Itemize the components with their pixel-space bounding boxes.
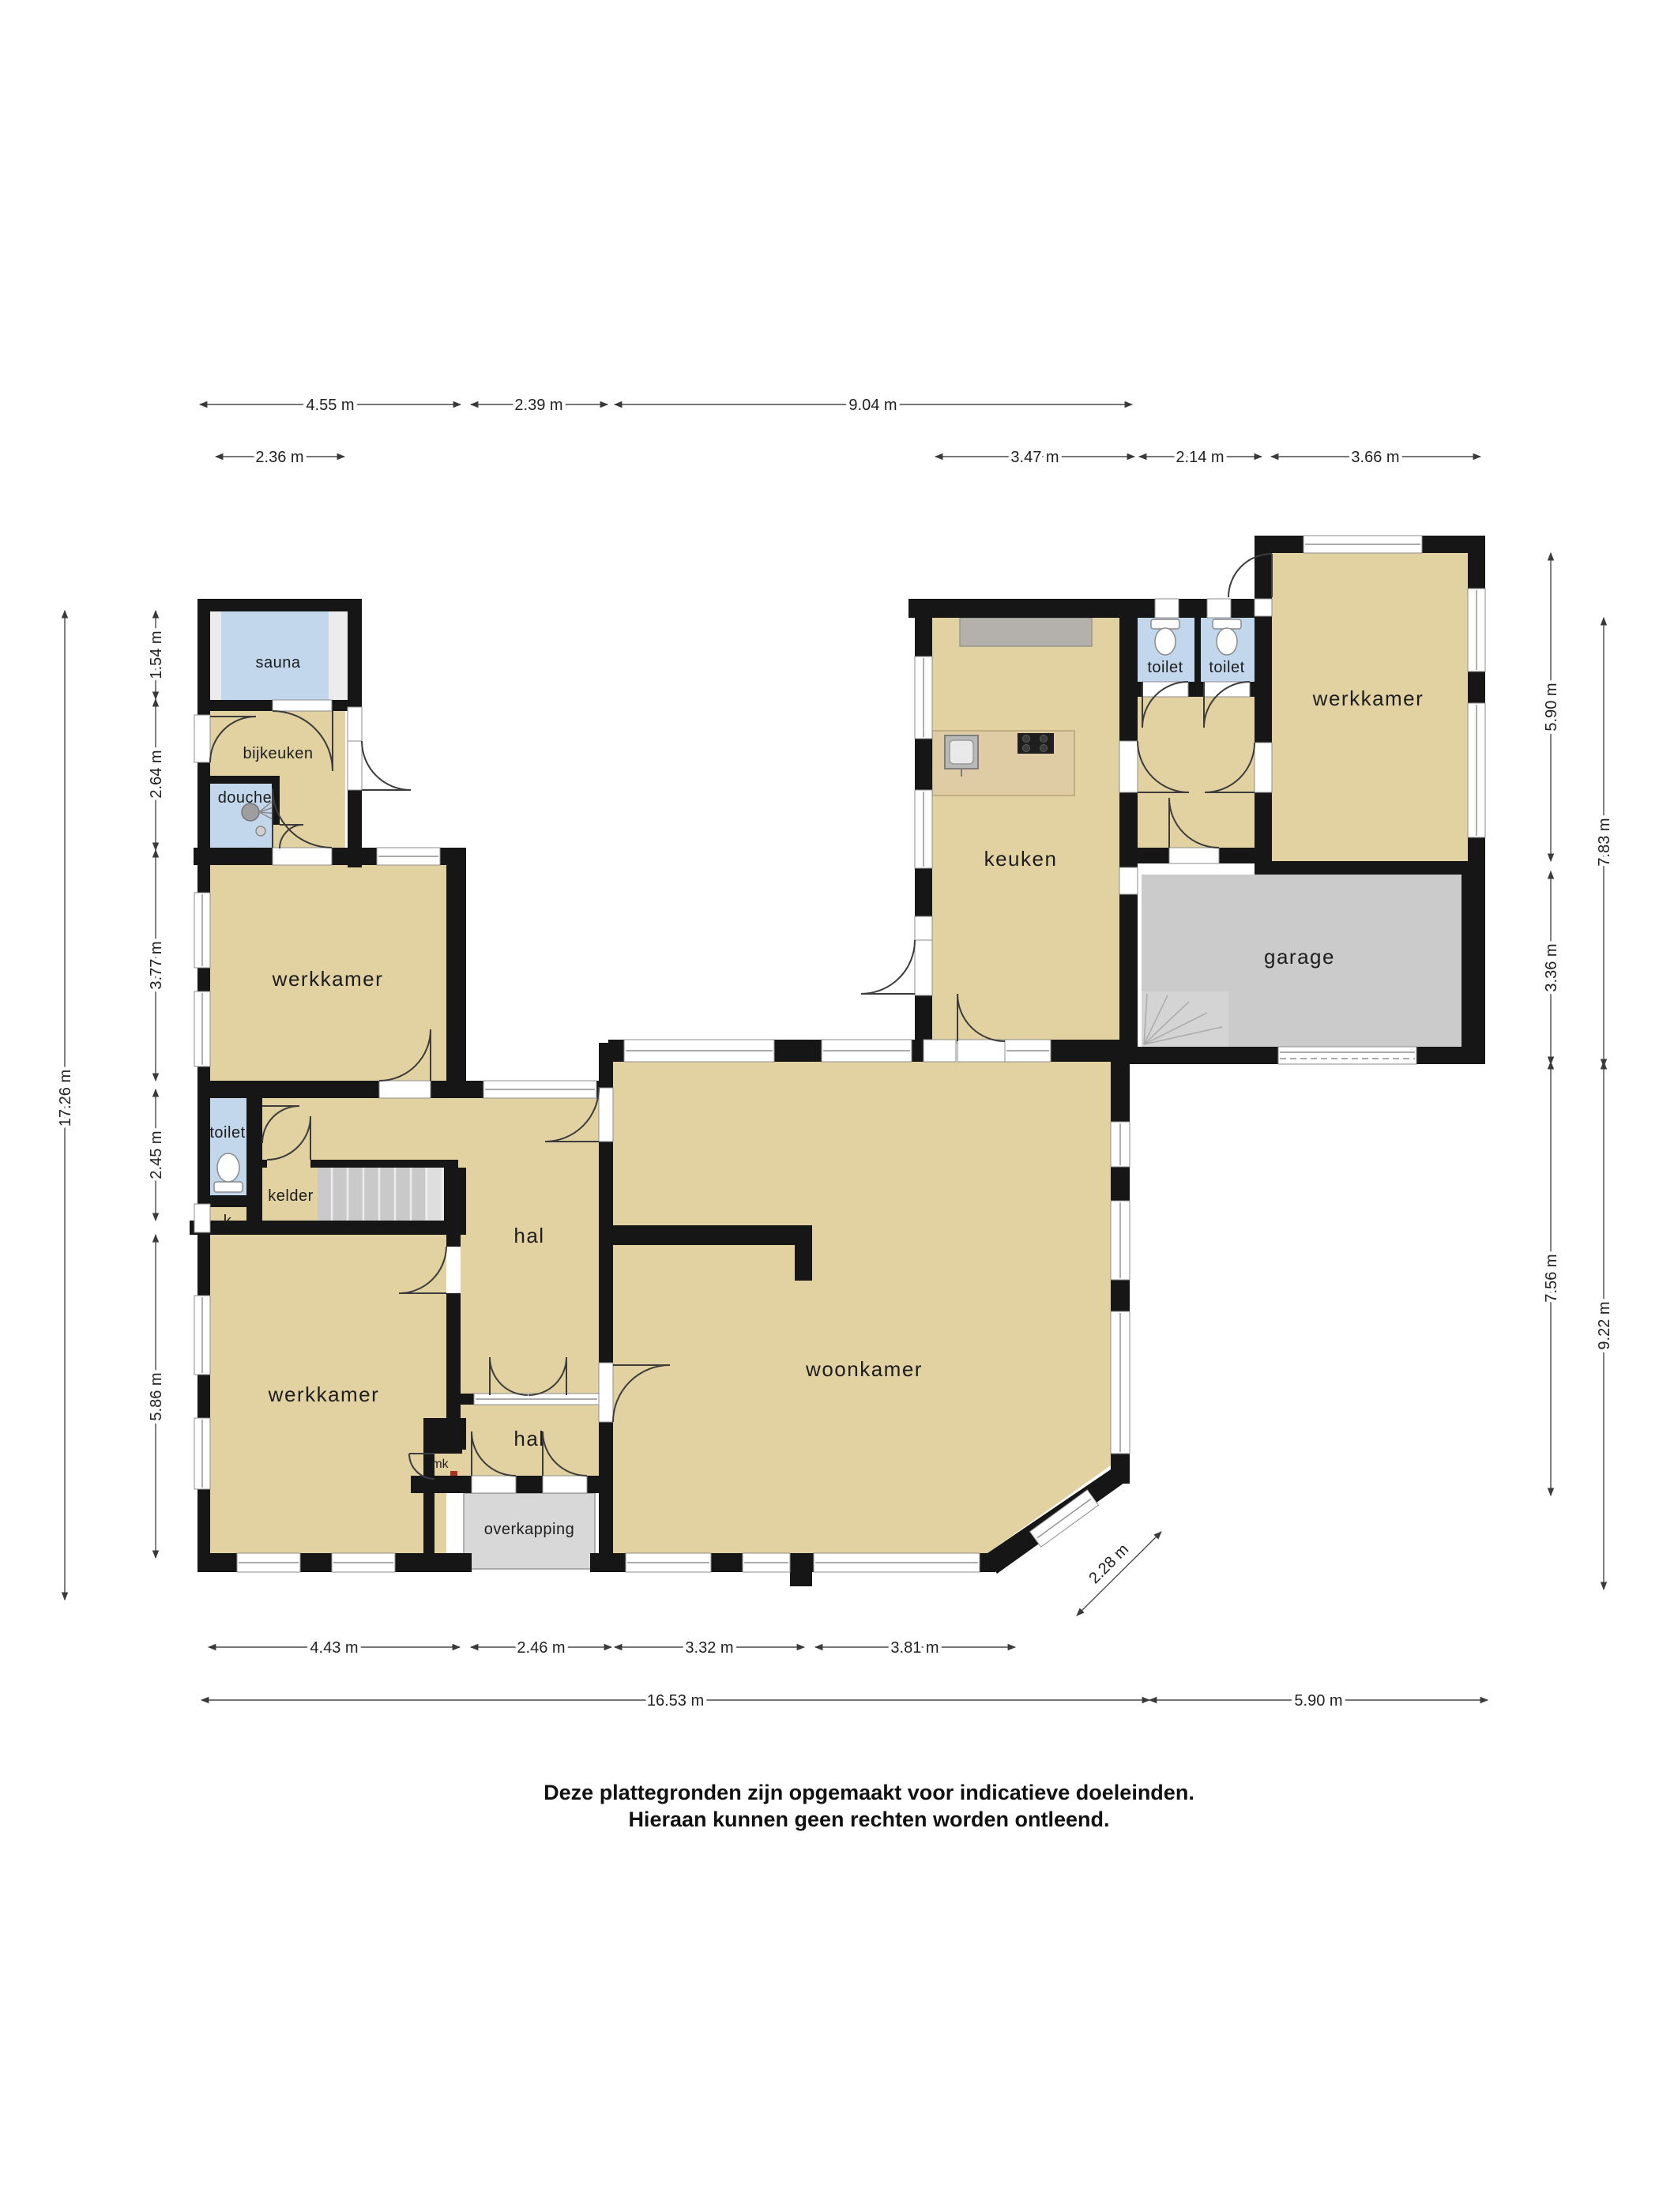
label-hal-onder: hal: [513, 1427, 544, 1450]
window: [194, 1204, 210, 1232]
dimension-label: 5.90 m: [1543, 683, 1560, 731]
disclaimer-line1: Deze plattegronden zijn opgemaakt voor i…: [276, 1779, 1461, 1806]
door-opening: [273, 848, 332, 865]
dimension-label: 9.04 m: [848, 397, 897, 414]
dimension-label: 4.55 m: [306, 397, 354, 414]
label-garage: garage: [1264, 945, 1335, 969]
dimension-label: 2.39 m: [514, 397, 562, 414]
door-opening: [915, 940, 932, 995]
dimension-label: 17.26 m: [57, 1070, 74, 1127]
dimension-label: 3.32 m: [685, 1639, 733, 1657]
window: [1303, 536, 1422, 553]
label-k: k: [224, 1213, 232, 1230]
door-opening: [957, 1040, 1005, 1062]
label-werkkamer-rechtsboven: werkkamer: [1312, 687, 1424, 710]
window: [377, 848, 440, 865]
window: [924, 1040, 956, 1062]
dimension-label: 2.36 m: [255, 449, 303, 466]
kitchen-counter: [960, 618, 1092, 646]
door-opening: [1142, 682, 1188, 697]
door-opening: [379, 1081, 431, 1098]
window: [743, 1553, 790, 1572]
window: [348, 707, 362, 741]
dimension-label: 3.77 m: [148, 941, 165, 989]
label-toilet-1: toilet: [1147, 659, 1183, 676]
window: [626, 1553, 711, 1572]
label-mk: mk: [431, 1458, 449, 1471]
window: [194, 715, 210, 762]
door-opening: [599, 1363, 613, 1422]
dimension-label: 1.54 m: [148, 630, 165, 679]
kitchen-island: [932, 731, 1074, 796]
door-swing: [362, 741, 411, 790]
floorplan-page: sauna bijkeuken douche werkkamer toilet …: [0, 0, 1659, 2212]
label-werkkamer-linksboven: werkkamer: [272, 967, 384, 991]
dimension-label: 3.47 m: [1010, 449, 1059, 466]
door-opening: [1119, 741, 1138, 792]
dimension-label: 7.56 m: [1543, 1254, 1560, 1302]
window: [483, 1081, 596, 1098]
label-bijkeuken: bijkeuken: [243, 745, 313, 762]
window: [194, 1418, 210, 1489]
window: [915, 790, 932, 868]
dimension-label: 2.14 m: [1176, 449, 1224, 466]
window: [1155, 599, 1179, 618]
dimension-label: 2.45 m: [148, 1130, 165, 1179]
window: [194, 893, 210, 968]
dimension-label: 4.43 m: [310, 1639, 358, 1657]
window: [194, 991, 210, 1066]
door-swing: [861, 940, 915, 994]
label-hal-boven: hal: [513, 1224, 544, 1247]
window: [1468, 589, 1485, 671]
door-opening: [599, 1088, 613, 1142]
window: [1111, 1201, 1130, 1280]
window: [474, 1394, 599, 1405]
dimension-label: 5.86 m: [148, 1372, 165, 1420]
window: [915, 656, 932, 739]
dimension-label: 16.53 m: [647, 1692, 704, 1710]
disclaimer-line2: Hieraan kunnen geen rechten worden ontle…: [276, 1806, 1461, 1833]
window: [1111, 1122, 1130, 1167]
dimension-label: 9.22 m: [1596, 1301, 1613, 1349]
window: [1119, 867, 1138, 894]
room-keuken: [932, 618, 1119, 1044]
dimension-label: 3.36 m: [1543, 943, 1560, 991]
hallway-rechts: [1138, 697, 1255, 848]
label-werkkamer-linksonder: werkkamer: [268, 1382, 380, 1406]
kelder-stairs-icon: [318, 1168, 458, 1221]
dimension-label: 3.81 m: [890, 1639, 939, 1657]
label-toilet-2: toilet: [1209, 659, 1244, 676]
disclaimer: Deze plattegronden zijn opgemaakt voor i…: [276, 1779, 1461, 1833]
label-overkapping: overkapping: [484, 1521, 574, 1538]
door-opening: [348, 741, 362, 790]
garage-stairs-icon: [1142, 991, 1228, 1047]
room-hal: [461, 1098, 599, 1476]
window: [822, 1040, 912, 1062]
cooktop-icon: [1018, 733, 1054, 754]
garage-door: [1278, 1047, 1416, 1064]
door-opening: [472, 1476, 516, 1493]
window: [194, 1296, 210, 1375]
label-toilet-links: toilet: [209, 1124, 245, 1142]
floorplan-drawing: sauna bijkeuken douche werkkamer toilet …: [0, 0, 1659, 2212]
door-opening: [1204, 682, 1250, 697]
label-douche: douche: [218, 789, 273, 807]
door-opening: [1255, 743, 1272, 792]
door-opening: [273, 700, 332, 711]
window: [237, 1553, 300, 1572]
window: [1207, 599, 1231, 618]
window: [624, 1040, 774, 1062]
dimension-label: 2.64 m: [148, 750, 165, 798]
sauna-side-glass: [210, 611, 221, 700]
window: [332, 1553, 395, 1572]
dimension-label: 2.28 m: [1085, 1540, 1132, 1587]
label-woonkamer: woonkamer: [805, 1357, 923, 1381]
door-opening: [543, 1476, 587, 1493]
door-opening: [1169, 848, 1219, 863]
dimension-label: 7.83 m: [1596, 818, 1613, 866]
window: [1468, 703, 1485, 837]
window: [915, 916, 932, 940]
door-opening: [1255, 599, 1272, 616]
label-kelder: kelder: [268, 1187, 313, 1205]
window: [814, 1553, 980, 1572]
window: [1005, 1040, 1051, 1062]
dimension-label: 5.90 m: [1294, 1692, 1342, 1710]
dimension-label: 2.46 m: [517, 1639, 565, 1657]
corridor: [262, 1098, 474, 1168]
label-sauna: sauna: [256, 654, 301, 671]
window: [1111, 1311, 1130, 1454]
room-woonkamer: [613, 1062, 1111, 1553]
label-keuken: keuken: [984, 847, 1058, 871]
dimension-label: 3.66 m: [1351, 449, 1399, 466]
sauna-side-glass: [329, 611, 348, 700]
